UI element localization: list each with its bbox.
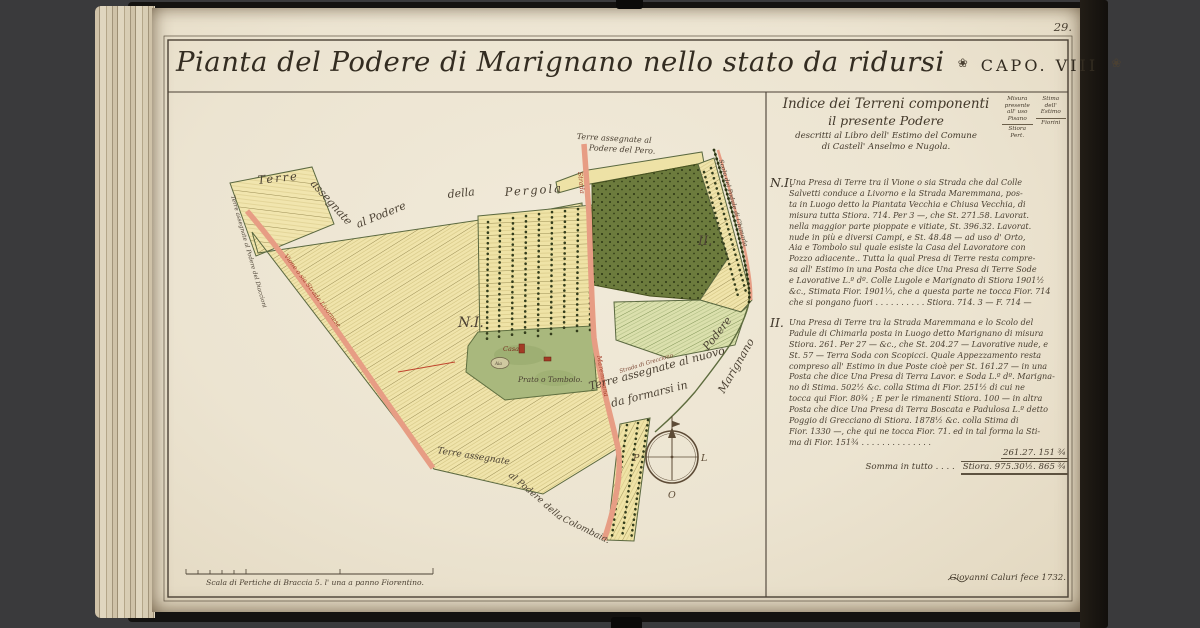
scale-bar <box>186 568 433 574</box>
measure-column-header: Misurapresenteall' usoPisano Stiora Pert… <box>1002 96 1033 140</box>
page-title-row: Pianta del Podere di Marignano nello sta… <box>176 46 1064 90</box>
map-label-pergola-4: della <box>447 185 475 201</box>
index-item-2: II. Una Presa di Terre tra la Strada Mar… <box>772 317 1068 458</box>
index-item-2-label: II. <box>770 315 784 330</box>
parcel-central-treerows <box>478 205 593 345</box>
index-total-row: Somma in tutto . . . .Stiora. 975.30½. 8… <box>772 462 1068 472</box>
map-label-pero-2: Podere del Pero. <box>588 143 656 156</box>
road-label-strada: Strada <box>576 171 586 194</box>
map-label-prato: Prato o Tombolo. <box>517 375 582 384</box>
index-item-1-label: N.I. <box>770 175 793 190</box>
index-item-1: N.I. Una Presa di Terre tra il Vione o s… <box>772 177 1068 308</box>
compass-east-letter: L <box>700 453 707 464</box>
index-heading-lines: Indice dei Terreni componentiil presente… <box>772 96 1000 152</box>
index-column-headers: Misurapresenteall' usoPisano Stiora Pert… <box>1002 96 1066 140</box>
index-heading: Indice dei Terreni componentiil presente… <box>772 96 1068 168</box>
measure-unit: Stiora Pert. <box>1002 124 1033 139</box>
outbuilding <box>544 357 551 361</box>
map-label-pero-1: Terre assegnate al <box>576 132 652 145</box>
map-label-casa: Casa <box>503 345 519 353</box>
map-label-pergola-5: Pergola <box>503 181 563 199</box>
map-label-colombaia-4: Colombaia. <box>561 515 612 547</box>
total-label: Somma in tutto . . . . <box>866 462 955 472</box>
index-panel: Indice dei Terreni componentiil presente… <box>772 96 1068 596</box>
scale-caption: Scala di Pertiche di Braccia 5. l' una a… <box>190 578 440 587</box>
photographed-manuscript: Terre assegnate al Podere della Pergola … <box>0 0 1200 628</box>
compass-south-letter: O <box>668 490 676 501</box>
page-title: Pianta del Podere di Marignano nello sta… <box>176 46 945 78</box>
cartographer-signature: Giovanni Caluri fece 1732. <box>896 573 1066 583</box>
page-number: 29. <box>1028 20 1072 34</box>
map-label-aia: Aia <box>494 361 502 366</box>
estimate-unit: Fiorini <box>1036 118 1067 127</box>
map-parcel-number-2: II. <box>697 234 712 249</box>
map-label-pergola-3: al Podere <box>354 199 408 231</box>
index-item-1-text: Una Presa di Terre tra il Vione o sia St… <box>789 177 1068 308</box>
fleuron-icon: ❀ <box>1111 56 1121 70</box>
map-parcel-number-1: N.I. <box>457 315 484 331</box>
chapter-number: CAPO. VIII <box>981 56 1098 75</box>
total-value: Stiora. 975.30½. 865 ¾ <box>961 461 1068 475</box>
index-item-2-figures: 261.27. 151 ¾ <box>789 448 1068 458</box>
map-label-colombaia-3: della <box>541 501 564 523</box>
index-item-2-text: Una Presa di Terre tra la Strada Maremma… <box>789 317 1068 448</box>
estimate-column-header: Stimadell'Estimo Fiorini <box>1036 96 1067 140</box>
casa-building <box>519 344 525 353</box>
compass-west-letter: P <box>632 453 640 464</box>
fleuron-icon: ❀ <box>958 56 968 70</box>
